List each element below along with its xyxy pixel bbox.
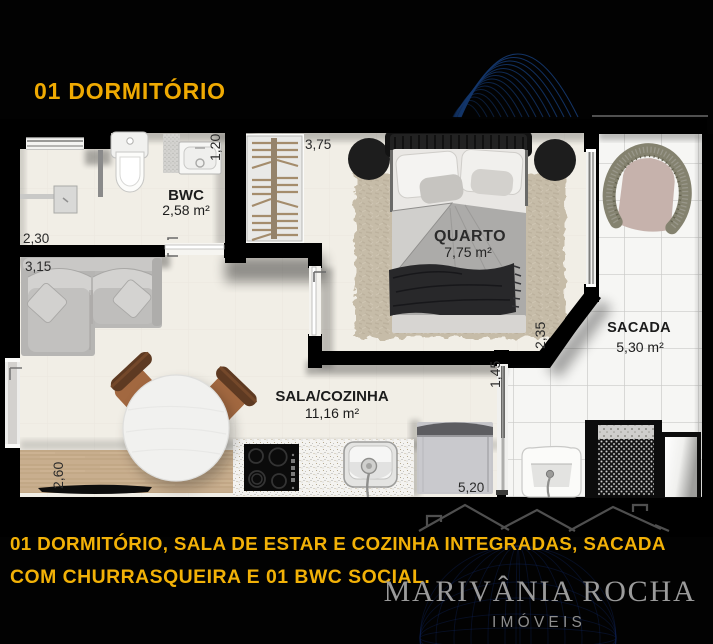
svg-text:2,30: 2,30	[23, 231, 49, 246]
svg-text:7,75 m²: 7,75 m²	[444, 244, 492, 260]
svg-text:2,58 m²: 2,58 m²	[162, 202, 210, 218]
svg-text:1,20: 1,20	[207, 134, 223, 161]
svg-text:1,45: 1,45	[487, 361, 503, 388]
svg-text:QUARTO: QUARTO	[434, 228, 506, 245]
svg-text:01 DORMITÓRIO: 01 DORMITÓRIO	[34, 77, 226, 104]
svg-text:5,30 m²: 5,30 m²	[616, 339, 664, 355]
svg-text:2,60: 2,60	[50, 462, 66, 489]
svg-text:2,35: 2,35	[532, 322, 548, 349]
svg-text:3,15: 3,15	[25, 259, 51, 274]
svg-text:5,20: 5,20	[458, 480, 484, 495]
svg-text:IMÓVEIS: IMÓVEIS	[492, 614, 586, 631]
svg-text:3,75: 3,75	[305, 137, 331, 152]
svg-text:SACADA: SACADA	[607, 320, 671, 336]
svg-text:11,16 m²: 11,16 m²	[305, 405, 360, 421]
svg-text:MARIVÂNIA ROCHA: MARIVÂNIA ROCHA	[384, 575, 697, 608]
svg-text:COM CHURRASQUEIRA E 01 BWC SOC: COM CHURRASQUEIRA E 01 BWC SOCIAL.	[10, 566, 430, 588]
svg-text:SALA/COZINHA: SALA/COZINHA	[275, 388, 388, 405]
svg-text:01 DORMITÓRIO, SALA DE ESTAR E: 01 DORMITÓRIO, SALA DE ESTAR E COZINHA I…	[10, 533, 666, 554]
